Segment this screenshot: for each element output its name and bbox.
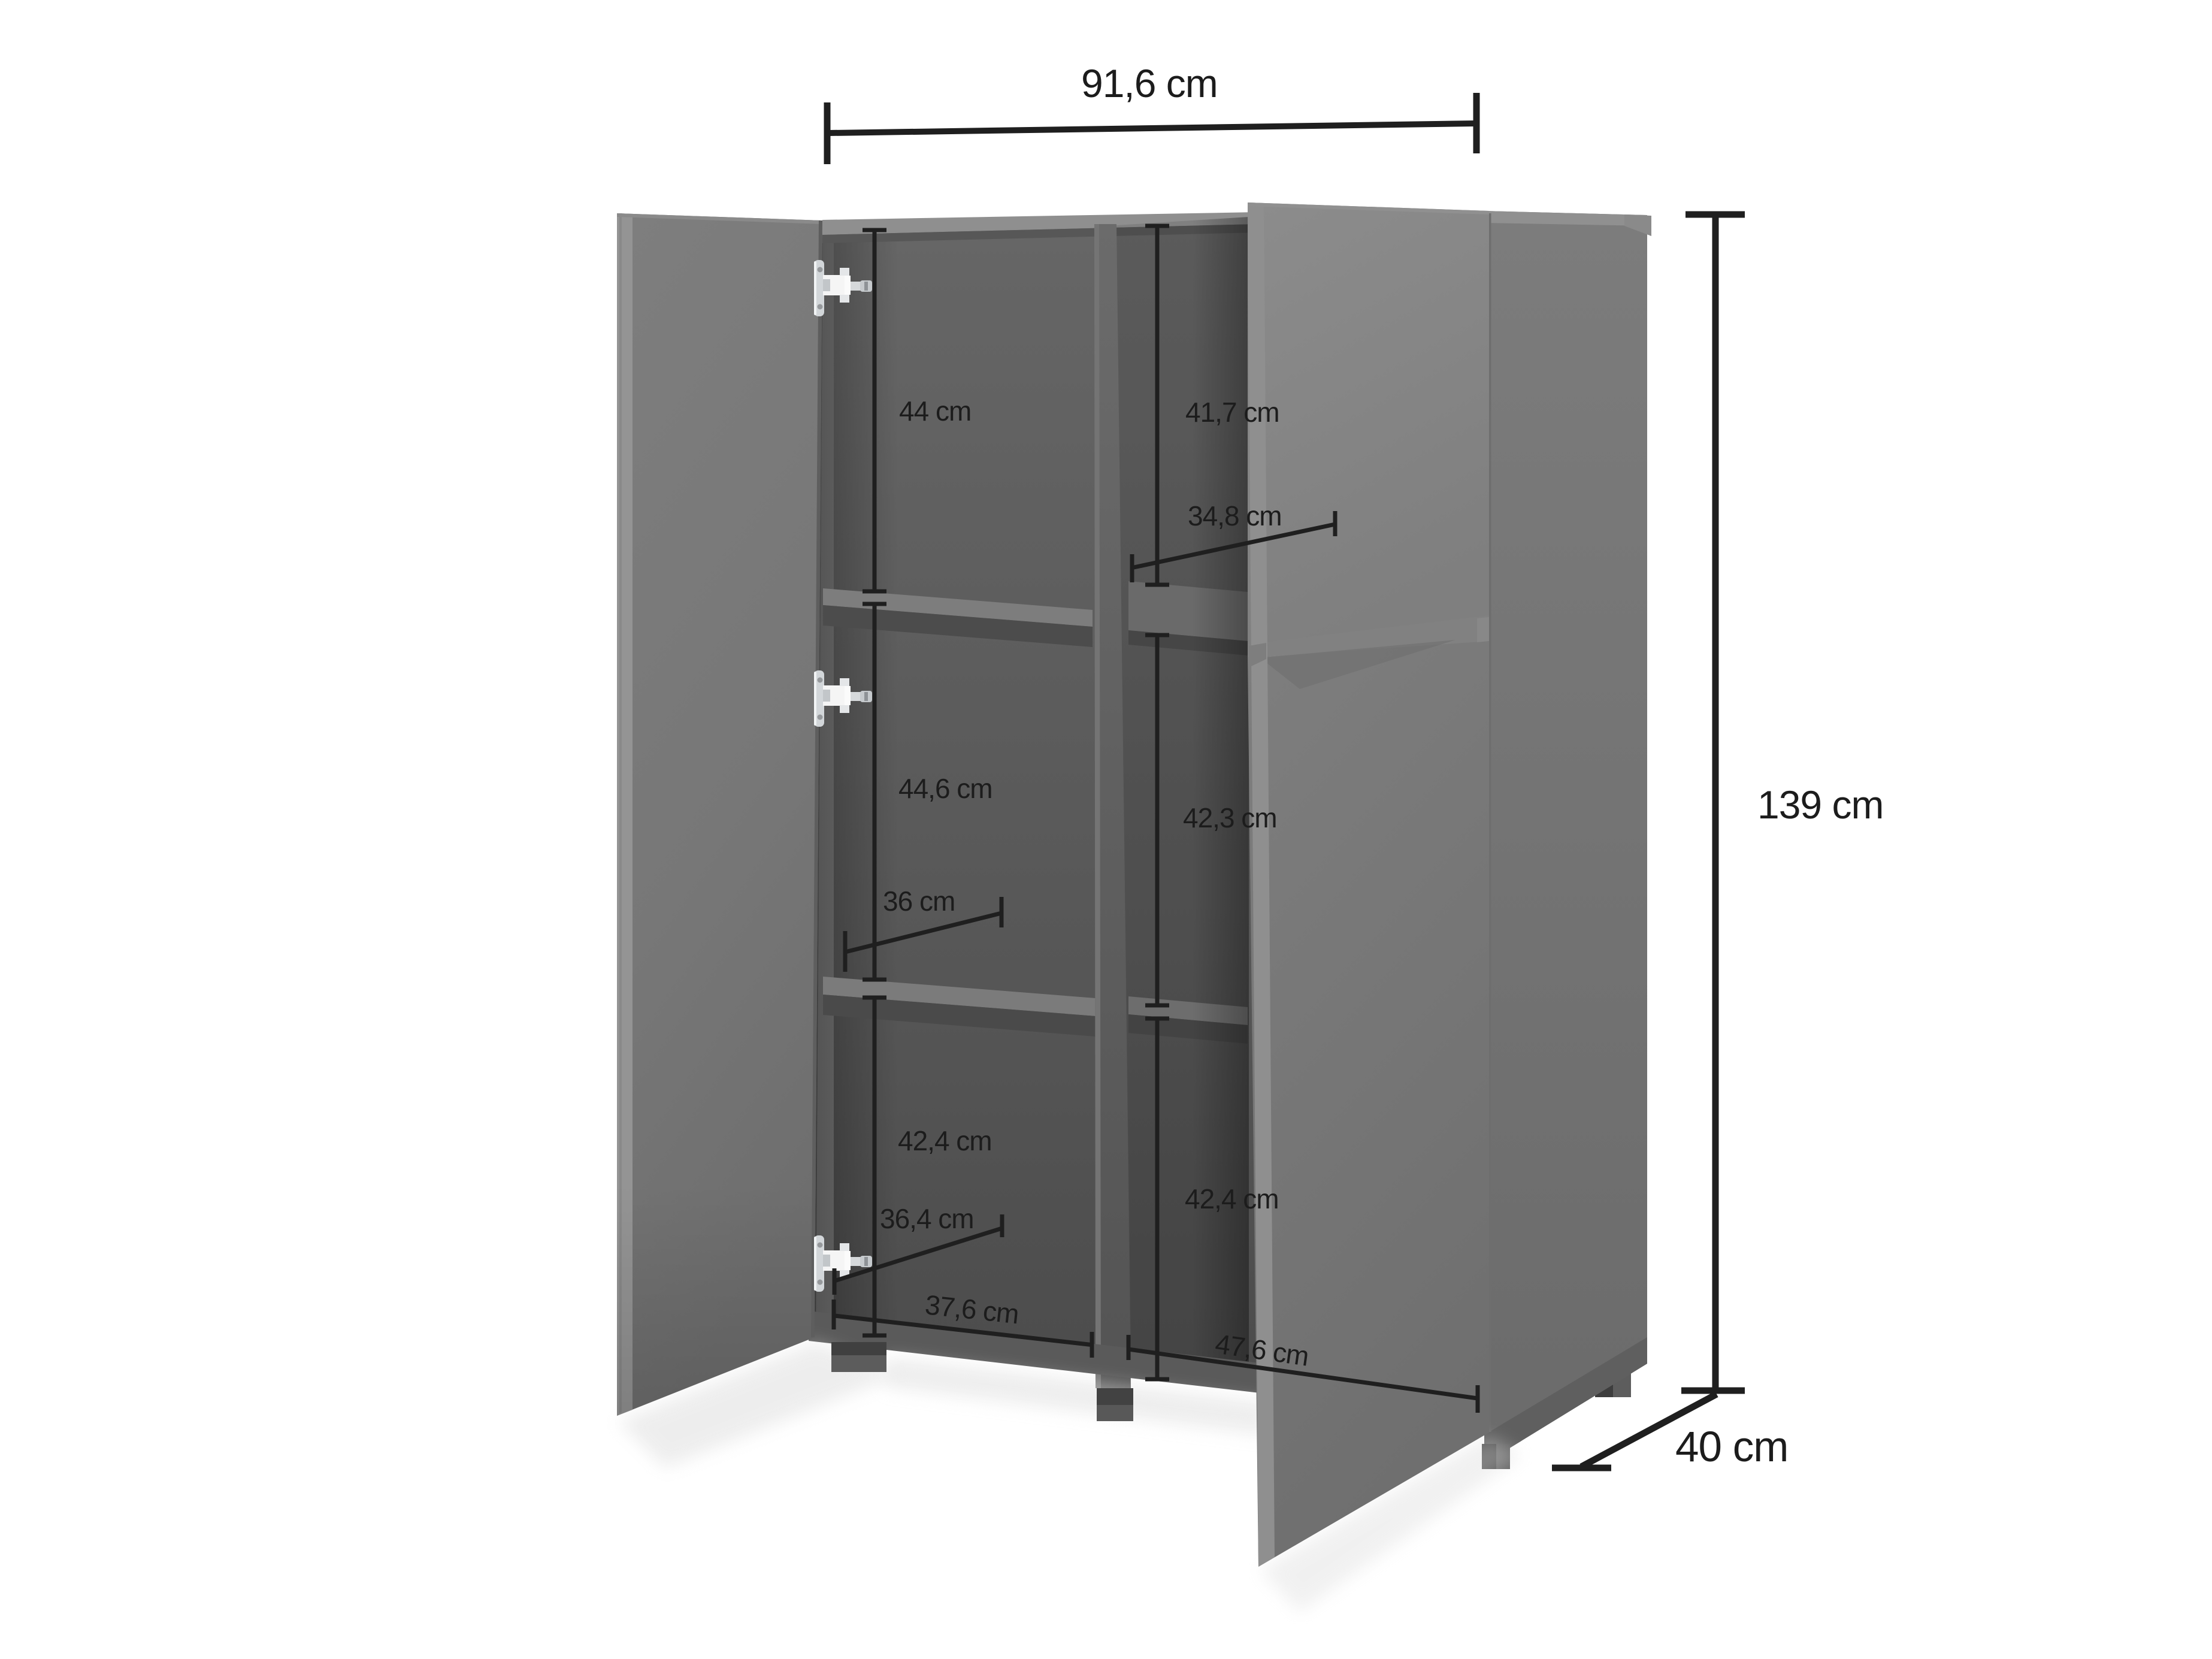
svg-text:44,6 cm: 44,6 cm (898, 773, 992, 804)
svg-text:44 cm: 44 cm (899, 395, 971, 427)
svg-text:34,8 cm: 34,8 cm (1188, 500, 1282, 531)
svg-text:36,4 cm: 36,4 cm (880, 1203, 974, 1234)
svg-text:42,4 cm: 42,4 cm (898, 1125, 992, 1156)
svg-text:41,7 cm: 41,7 cm (1185, 397, 1279, 428)
svg-text:42,3 cm: 42,3 cm (1183, 802, 1277, 833)
svg-text:42,4 cm: 42,4 cm (1185, 1183, 1279, 1214)
svg-text:139 cm: 139 cm (1757, 782, 1883, 827)
svg-text:36 cm: 36 cm (883, 886, 955, 917)
svg-text:40 cm: 40 cm (1675, 1424, 1788, 1471)
svg-text:91,6 cm: 91,6 cm (1081, 61, 1218, 105)
